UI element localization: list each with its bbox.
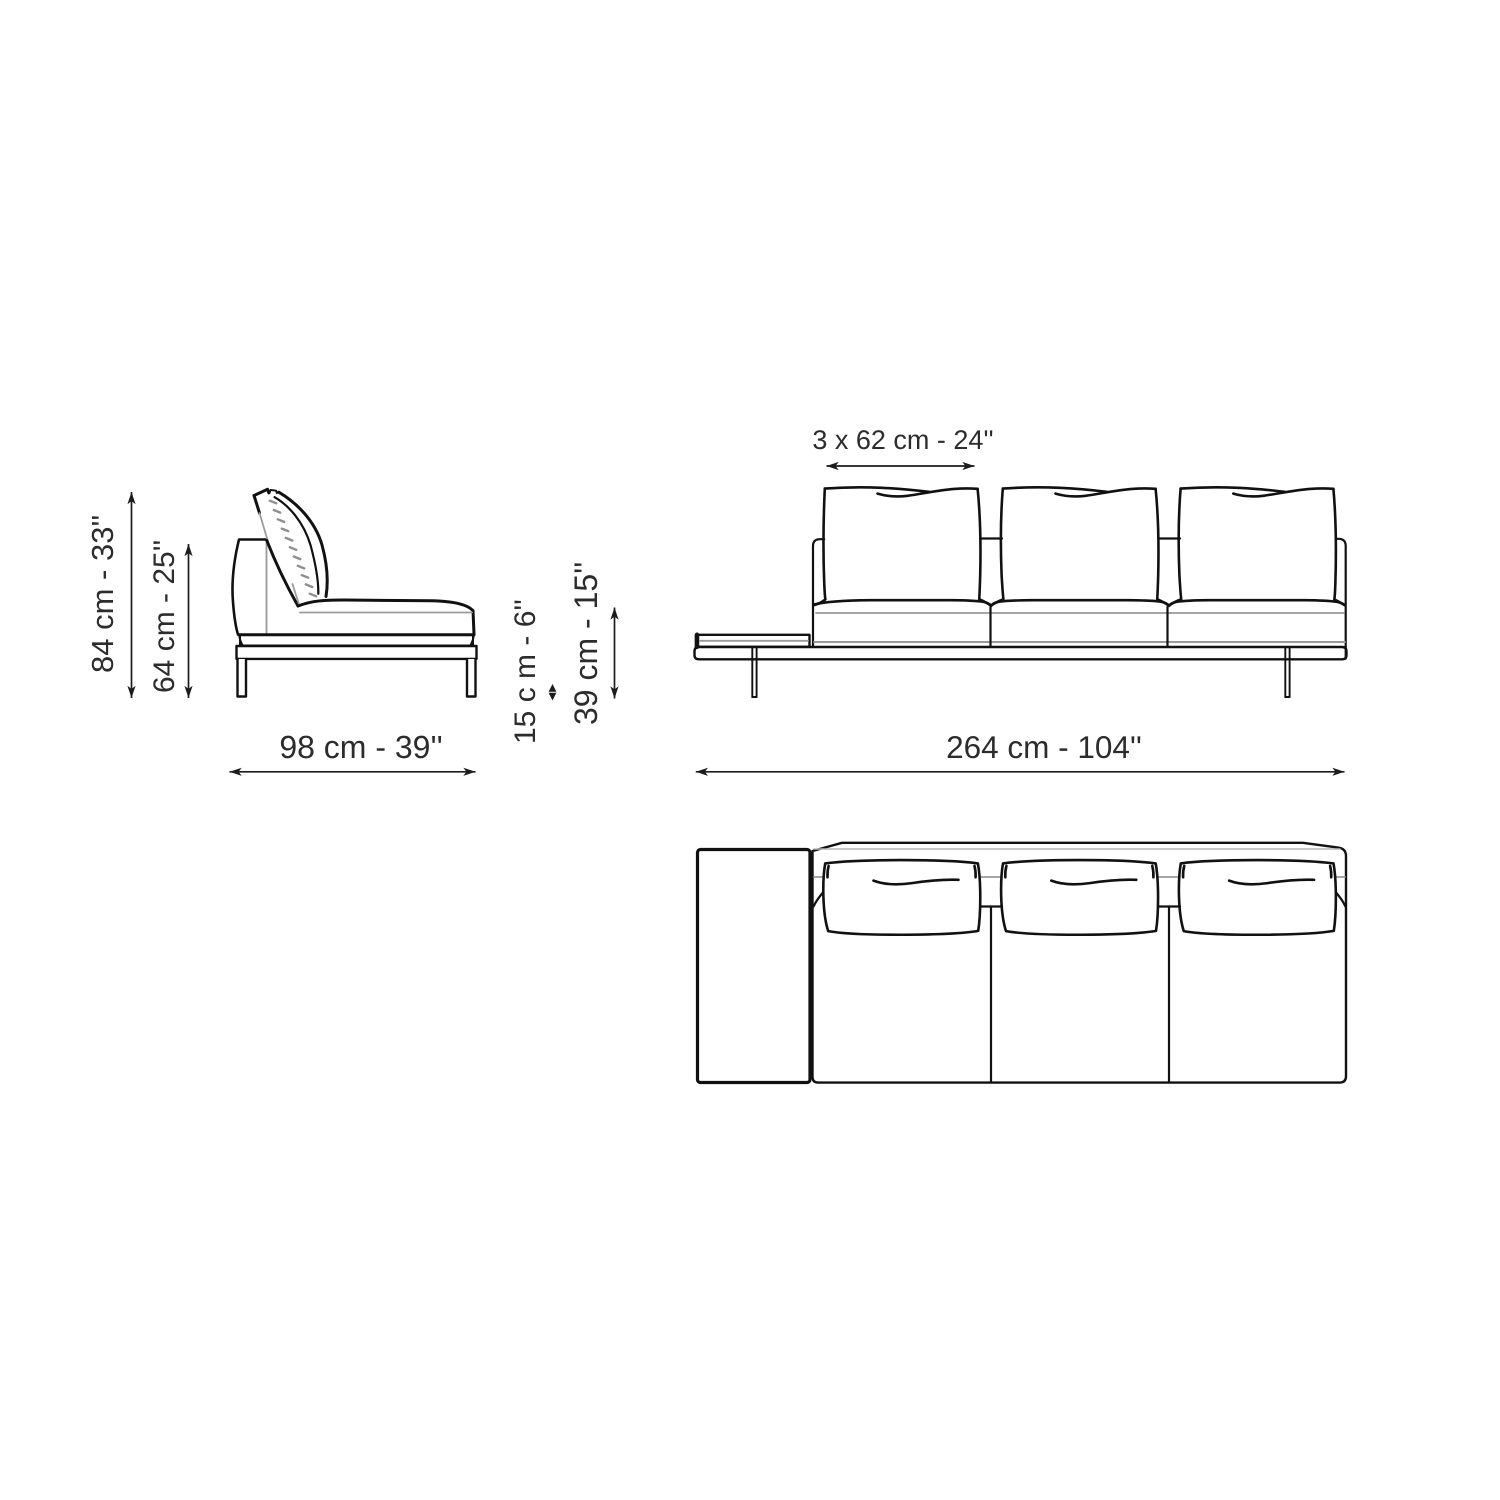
svg-text:98 cm - 39'': 98 cm - 39'': [279, 729, 442, 765]
svg-text:264 cm - 104'': 264 cm - 104'': [946, 729, 1142, 765]
svg-text:84 cm - 33'': 84 cm - 33'': [85, 515, 120, 673]
svg-text:64 cm - 25'': 64 cm - 25'': [148, 540, 181, 693]
svg-text:39 cm - 15'': 39 cm - 15'': [568, 562, 604, 725]
svg-text:15 c m - 6'': 15 c m - 6'': [509, 599, 542, 744]
svg-text:3 x 62 cm - 24'': 3 x 62 cm - 24'': [812, 425, 993, 455]
